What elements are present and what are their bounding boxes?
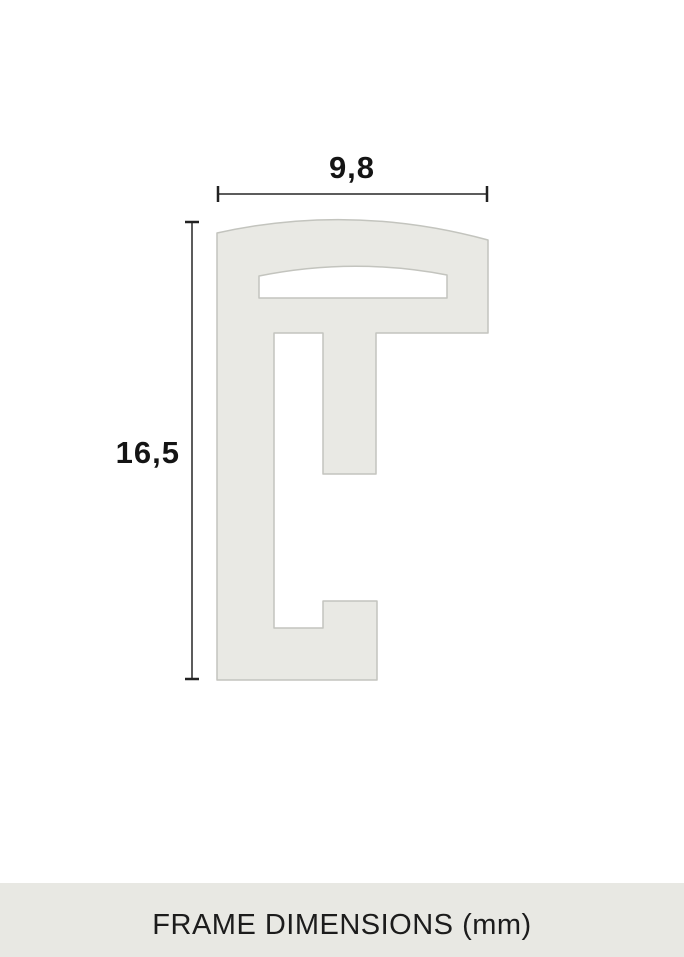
profile-drawing — [0, 0, 684, 957]
frame-profile-diagram: 9,8 16,5 FRAME DIMENSIONS (mm) — [0, 0, 684, 957]
height-dimension-line — [185, 222, 199, 679]
width-dimension-label: 9,8 — [217, 152, 487, 183]
height-dimension-label: 16,5 — [96, 437, 180, 468]
frame-profile-shape — [217, 220, 488, 680]
width-dimension-line — [218, 186, 487, 202]
caption-band: FRAME DIMENSIONS (mm) — [0, 883, 684, 957]
frame-dimensions-caption: FRAME DIMENSIONS (mm) — [152, 899, 531, 942]
